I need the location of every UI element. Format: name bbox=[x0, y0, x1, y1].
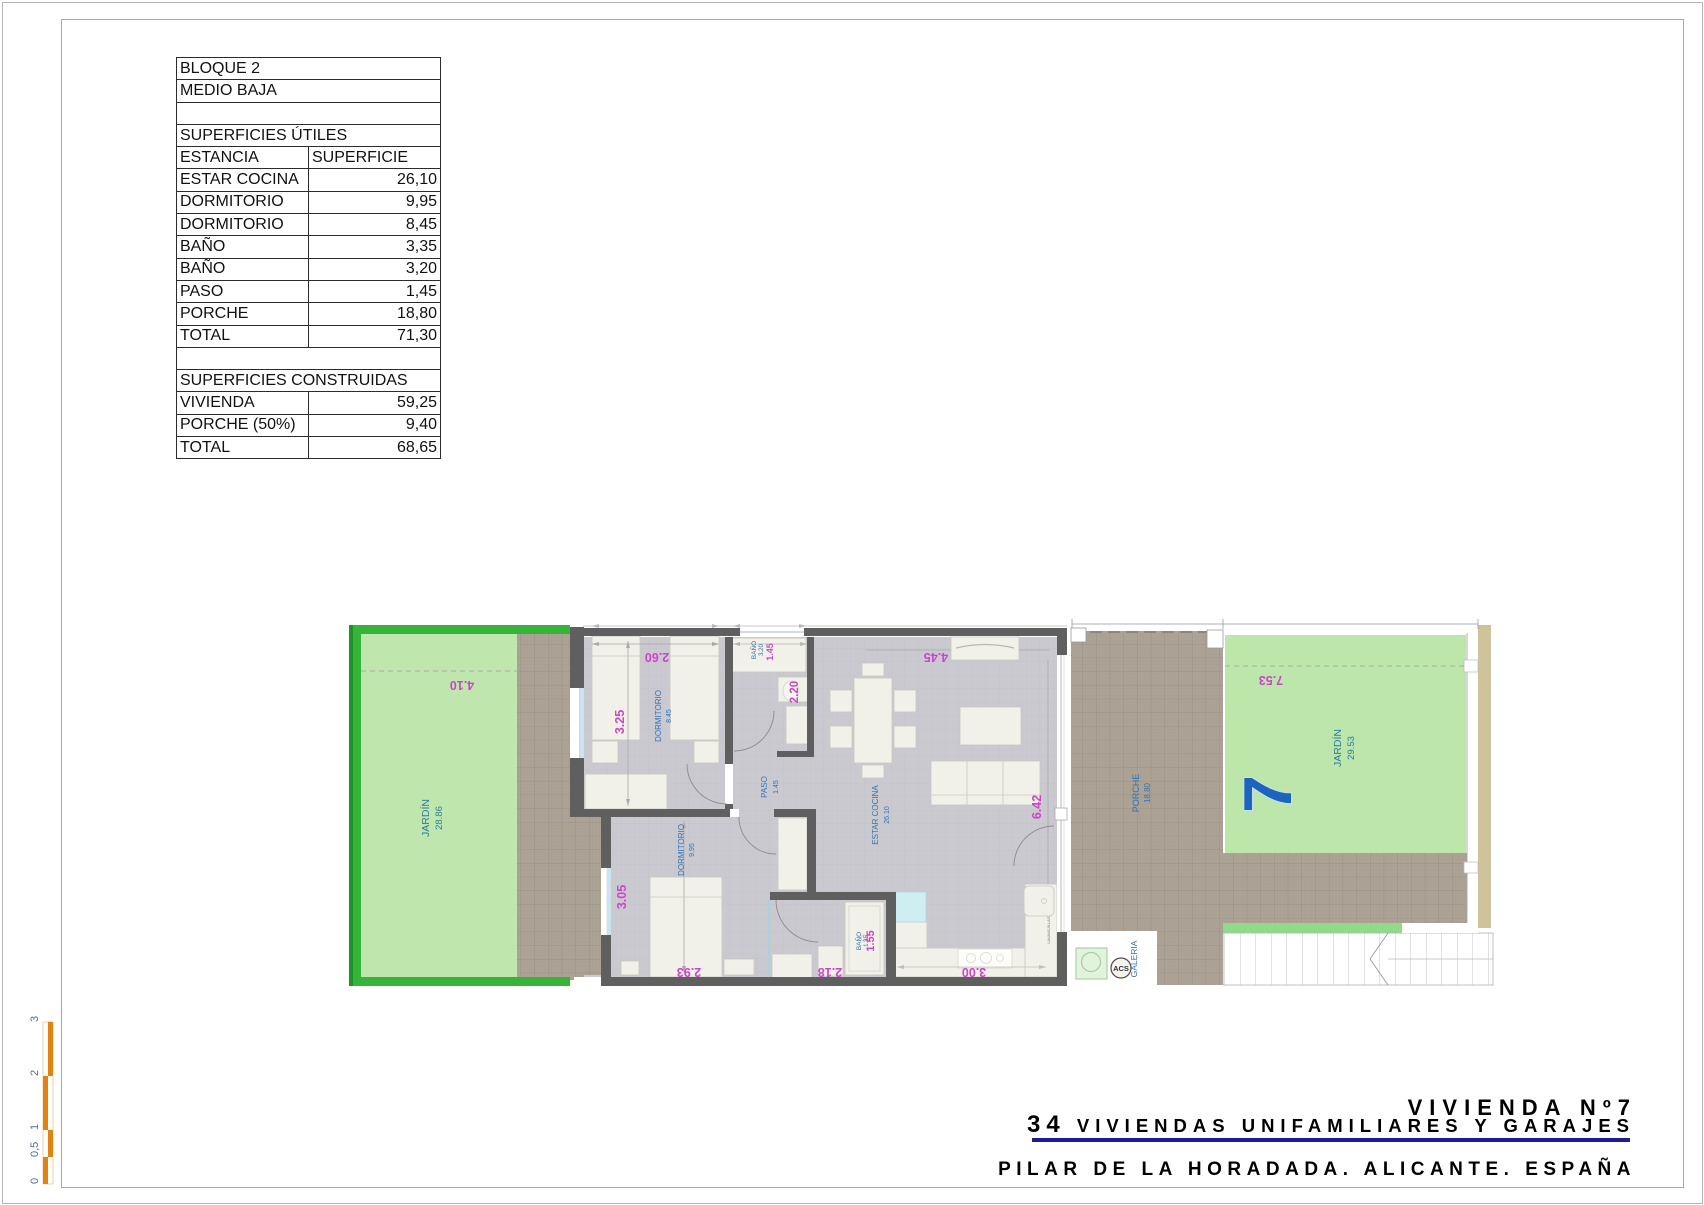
svg-text:DORMITORIO: DORMITORIO bbox=[677, 824, 686, 876]
svg-text:7.53: 7.53 bbox=[1259, 673, 1283, 687]
svg-text:4.10: 4.10 bbox=[450, 678, 474, 692]
svg-text:PASO: PASO bbox=[760, 776, 769, 798]
svg-text:BAÑO: BAÑO bbox=[854, 932, 863, 950]
svg-text:PORCHE: PORCHE bbox=[1131, 774, 1141, 813]
svg-text:3: 3 bbox=[29, 1016, 41, 1022]
svg-text:0: 0 bbox=[29, 1178, 41, 1184]
svg-text:2.20: 2.20 bbox=[789, 681, 801, 703]
svg-text:LAVAVAJILLAS: LAVAVAJILLAS bbox=[1046, 916, 1051, 944]
svg-text:18.80: 18.80 bbox=[1143, 782, 1152, 803]
svg-text:2.93: 2.93 bbox=[677, 965, 701, 979]
svg-text:1.45: 1.45 bbox=[765, 643, 775, 661]
svg-text:DORMITORIO: DORMITORIO bbox=[654, 690, 663, 742]
svg-text:ESTAR COCINA: ESTAR COCINA bbox=[871, 785, 880, 845]
svg-text:1.45: 1.45 bbox=[773, 780, 780, 794]
svg-text:JARDÍN: JARDÍN bbox=[419, 799, 432, 837]
svg-text:7: 7 bbox=[1230, 775, 1306, 813]
svg-text:6.42: 6.42 bbox=[1030, 795, 1044, 819]
svg-text:GALERIA: GALERIA bbox=[1129, 940, 1139, 977]
svg-text:8.45: 8.45 bbox=[666, 709, 673, 723]
svg-text:29.53: 29.53 bbox=[1346, 736, 1357, 760]
svg-text:2: 2 bbox=[29, 1070, 41, 1076]
svg-text:BAÑO: BAÑO bbox=[749, 641, 758, 659]
svg-text:2.18: 2.18 bbox=[818, 965, 842, 979]
svg-text:ACS: ACS bbox=[1113, 964, 1129, 973]
svg-text:0,5: 0,5 bbox=[29, 1142, 41, 1157]
svg-text:4.45: 4.45 bbox=[924, 650, 948, 664]
svg-text:28.86: 28.86 bbox=[434, 806, 445, 830]
svg-text:26.10: 26.10 bbox=[884, 806, 891, 824]
svg-text:JARDÍN: JARDÍN bbox=[1331, 729, 1344, 767]
svg-text:2.60: 2.60 bbox=[645, 650, 669, 664]
svg-text:9.95: 9.95 bbox=[689, 843, 696, 857]
svg-text:3.25: 3.25 bbox=[613, 710, 627, 734]
svg-text:1: 1 bbox=[29, 1124, 41, 1130]
svg-text:1.55: 1.55 bbox=[865, 930, 877, 951]
svg-text:3.00: 3.00 bbox=[962, 965, 986, 979]
svg-text:3.05: 3.05 bbox=[615, 885, 629, 909]
